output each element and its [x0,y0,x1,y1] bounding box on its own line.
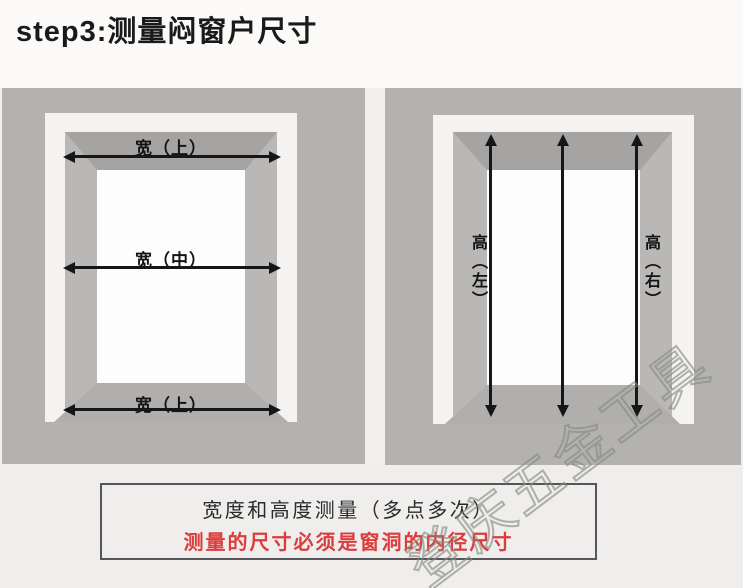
window-pane [97,170,245,383]
window-frame-right [672,115,694,424]
page: step3:测量闷窗户尺寸 宽（上） 宽（中） 宽（上） 高（左） 高（右） 宽… [0,0,743,588]
height-label-right: 高（右） [640,234,660,310]
window-frame-left [45,113,65,422]
note-box: 宽度和高度测量（多点多次） 测量的尺寸必须是窗洞的内径尺寸 [100,483,597,560]
window-frame-left [433,115,453,424]
left-window-panel: 宽（上） 宽（中） 宽（上） [2,88,365,464]
height-arrow-center [561,146,564,405]
width-label-bottom: 宽（上） [65,391,277,416]
note-line-2: 测量的尺寸必须是窗洞的内径尺寸 [102,526,595,555]
window-frame-top [433,115,694,132]
width-arrow-middle [75,266,269,269]
note-line-1: 宽度和高度测量（多点多次） [102,494,595,523]
height-arrow-right [635,146,638,405]
window-frame-top [45,113,297,132]
page-title: step3:测量闷窗户尺寸 [16,8,317,50]
width-arrow-bottom [75,408,269,411]
height-label-left: 高（左） [467,234,487,310]
right-window-panel: 高（左） 高（右） [385,88,741,465]
width-arrow-top [75,155,269,158]
height-arrow-left [489,146,492,405]
